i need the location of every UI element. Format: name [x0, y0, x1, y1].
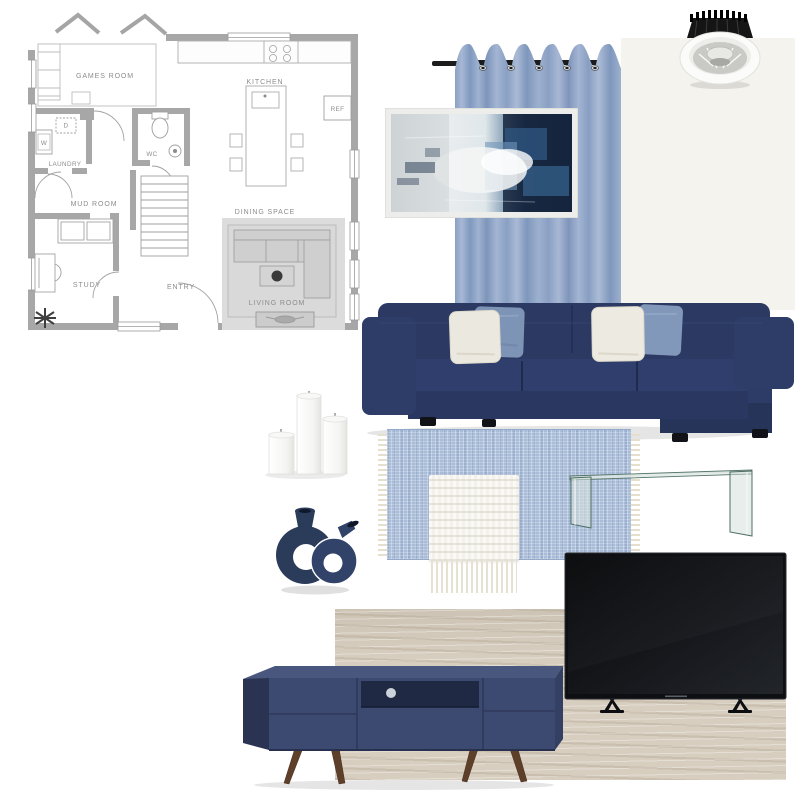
- label-living-room: LIVING ROOM: [249, 300, 306, 307]
- floor-plan[interactable]: GAMES ROOM KITCHEN REF WC D W LAUNDRY MU…: [28, 8, 368, 333]
- tv-unit-knob: [386, 688, 396, 698]
- label-laundry: LAUNDRY: [49, 161, 82, 168]
- glass-table-shape: [570, 470, 752, 536]
- candle-short: [269, 429, 294, 474]
- rug-fringe-left: [378, 431, 387, 556]
- label-wc: WC: [146, 151, 157, 158]
- label-ref: REF: [331, 106, 345, 113]
- candle-medium: [323, 413, 347, 474]
- candle-tall: [297, 391, 321, 474]
- vase-shadow: [281, 586, 349, 595]
- plan-kitchen: [178, 41, 351, 186]
- throw-fringe: [431, 560, 517, 593]
- tv-unit-body: [243, 666, 563, 750]
- plan-coffee-table-plant: [272, 271, 283, 282]
- tv-feet: [600, 698, 752, 713]
- painting-art: [391, 114, 572, 212]
- glass-coffee-table[interactable]: [566, 466, 756, 540]
- downlight-trim: [680, 32, 760, 84]
- label-kitchen: KITCHEN: [246, 79, 283, 86]
- sofa-body: [362, 303, 794, 433]
- plan-living-room: [222, 218, 345, 330]
- vase-right-vessel: [311, 519, 359, 584]
- label-study: STUDY: [73, 282, 101, 289]
- sculptural-vase[interactable]: [273, 503, 359, 595]
- abstract-painting[interactable]: [385, 108, 578, 218]
- downlight[interactable]: [663, 6, 778, 91]
- cushion-white-left: [449, 310, 501, 364]
- tv-logo: [665, 696, 687, 698]
- cushion-white-right: [592, 307, 645, 362]
- mood-board-canvas: GAMES ROOM KITCHEN REF WC D W LAUNDRY MU…: [0, 0, 800, 800]
- tv-screen: [565, 553, 786, 699]
- tv-unit[interactable]: [239, 653, 567, 793]
- label-entry: ENTRY: [167, 284, 195, 291]
- plan-stairs: [141, 176, 188, 256]
- label-washer: W: [41, 140, 47, 147]
- pillar-candles[interactable]: [253, 391, 351, 479]
- television[interactable]: [564, 552, 788, 714]
- tv-unit-shadow: [254, 780, 554, 790]
- throw-blanket[interactable]: [429, 475, 519, 595]
- label-games-room: GAMES ROOM: [76, 73, 134, 80]
- throw-body: [429, 475, 519, 561]
- tv-unit-legs: [284, 746, 527, 784]
- sectional-sofa[interactable]: [362, 293, 794, 445]
- label-dryer: D: [64, 123, 69, 130]
- plan-laundry-appliances: [36, 118, 76, 154]
- label-dining-space: DINING SPACE: [235, 209, 295, 216]
- gable-lines: [56, 15, 166, 34]
- label-mud-room: MUD ROOM: [71, 201, 118, 208]
